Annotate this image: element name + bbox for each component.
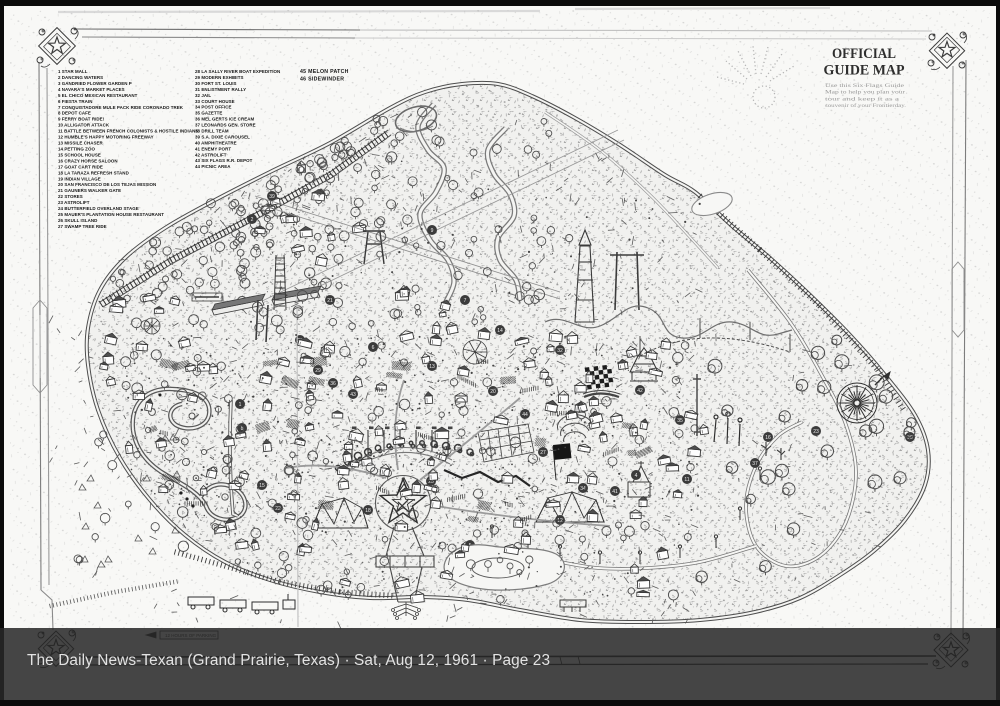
svg-text:42 ASTROLIFT: 42 ASTROLIFT	[195, 152, 227, 157]
svg-text:5 EL CHICO MEXICAN RESTAURANT: 5 EL CHICO MEXICAN RESTAURANT	[58, 93, 138, 98]
svg-text:24 BUTTERFIELD OVERLAND STAGE: 24 BUTTERFIELD OVERLAND STAGE	[58, 206, 139, 211]
svg-text:43: 43	[350, 392, 356, 398]
svg-text:33 COURT HOUSE: 33 COURT HOUSE	[195, 99, 235, 104]
svg-text:16 CRAZY HORSE SALOON: 16 CRAZY HORSE SALOON	[58, 158, 118, 163]
svg-text:36: 36	[330, 381, 336, 387]
svg-text:25 MAUER'S PLANTATION HOUSE RE: 25 MAUER'S PLANTATION HOUSE RESTAURANT	[58, 212, 164, 217]
svg-text:12 HUMBLE'S HAPPY MOTORING FRE: 12 HUMBLE'S HAPPY MOTORING FREEWAY	[58, 135, 154, 140]
svg-text:14 PETTING ZOO: 14 PETTING ZOO	[58, 147, 95, 152]
svg-text:4 NAVARA'S MARKET PLACES: 4 NAVARA'S MARKET PLACES	[58, 87, 125, 92]
svg-text:7 CONQUISTADORE MULE PACK RIDE: 7 CONQUISTADORE MULE PACK RIDE CORONADO …	[58, 105, 184, 110]
svg-text:29 MODERN EXHIBITS: 29 MODERN EXHIBITS	[195, 75, 244, 80]
svg-text:21: 21	[327, 298, 333, 304]
svg-text:37: 37	[752, 461, 758, 467]
svg-text:17 GOAT CART RIDE: 17 GOAT CART RIDE	[58, 164, 103, 169]
svg-text:37 LEONARDS GEN. STORE: 37 LEONARDS GEN. STORE	[195, 123, 256, 128]
svg-text:3 GANDRIED FLOWER GARDEN P: 3 GANDRIED FLOWER GARDEN P	[58, 81, 132, 86]
svg-text:OFFICIAL: OFFICIAL	[832, 46, 896, 62]
svg-text:28 LA SALLY RIVER BOAT EXPEDIT: 28 LA SALLY RIVER BOAT EXPEDITION	[195, 69, 280, 74]
svg-text:2: 2	[251, 217, 254, 223]
svg-text:27: 27	[540, 450, 546, 456]
svg-text:18 LA TARAZA REFRESH STAND: 18 LA TARAZA REFRESH STAND	[58, 170, 130, 175]
svg-text:7: 7	[464, 298, 467, 304]
svg-text:40 AMPHITHEATRE: 40 AMPHITHEATRE	[195, 140, 237, 145]
svg-text:11 BATTLE BETWEEN FRENCH COLON: 11 BATTLE BETWEEN FRENCH COLONISTS & HOS…	[58, 129, 198, 134]
svg-text:36 MEL GERTS ICE CREAM: 36 MEL GERTS ICE CREAM	[195, 117, 254, 122]
svg-text:38 DRILL TEAM: 38 DRILL TEAM	[195, 129, 229, 134]
svg-text:4: 4	[635, 473, 638, 479]
svg-text:15 SCHOOL HOUSE: 15 SCHOOL HOUSE	[58, 152, 101, 157]
svg-text:30 FORT ST. LOUIS: 30 FORT ST. LOUIS	[195, 81, 237, 86]
svg-text:32: 32	[557, 348, 563, 354]
svg-text:20: 20	[490, 389, 496, 395]
svg-text:31 ENLISTMENT RALLY: 31 ENLISTMENT RALLY	[195, 87, 246, 92]
svg-text:14: 14	[497, 328, 503, 334]
svg-text:42: 42	[637, 388, 643, 394]
svg-text:18: 18	[365, 508, 371, 514]
svg-text:1: 1	[239, 402, 242, 408]
svg-text:9: 9	[431, 228, 434, 234]
svg-text:43 SIX FLAGS R.R. DEPOT: 43 SIX FLAGS R.R. DEPOT	[195, 158, 253, 163]
svg-text:Use this Six Flags Guide: Use this Six Flags Guide	[825, 83, 905, 89]
svg-text:41: 41	[612, 489, 618, 495]
svg-text:13 MISSILE CHASER: 13 MISSILE CHASER	[58, 141, 103, 146]
svg-text:Map to help you plan your: Map to help you plan your	[825, 90, 905, 96]
svg-text:tour and keep it as a: tour and keep it as a	[825, 96, 900, 102]
svg-text:39 S.A. DIXIE CAROUSEL: 39 S.A. DIXIE CAROUSEL	[195, 134, 250, 139]
svg-text:15: 15	[259, 483, 265, 489]
svg-text:29: 29	[315, 368, 321, 374]
svg-text:26 SKULL ISLAND: 26 SKULL ISLAND	[58, 218, 98, 223]
svg-text:32 JAIL: 32 JAIL	[195, 93, 211, 98]
svg-text:44: 44	[522, 412, 528, 418]
svg-text:21 GAUNERS WALKER GATE: 21 GAUNERS WALKER GATE	[58, 188, 121, 193]
svg-text:1 STAR MALL: 1 STAR MALL	[58, 69, 88, 74]
svg-text:20 SAN FRANCISCO DE LOS TEJAS: 20 SAN FRANCISCO DE LOS TEJAS MISSION	[58, 182, 156, 187]
svg-text:6: 6	[372, 345, 375, 351]
svg-text:11: 11	[684, 477, 689, 483]
svg-text:GUIDE MAP: GUIDE MAP	[824, 63, 905, 79]
svg-text:35 GAZETTE: 35 GAZETTE	[195, 111, 222, 116]
svg-text:22 STORES: 22 STORES	[58, 194, 83, 199]
svg-text:45 MELON PATCH: 45 MELON PATCH	[300, 69, 349, 75]
svg-text:22: 22	[275, 506, 281, 512]
svg-text:35: 35	[677, 418, 683, 424]
svg-text:19 INDIAN VILLAGE: 19 INDIAN VILLAGE	[58, 176, 101, 181]
svg-text:44 PICNIC AREA: 44 PICNIC AREA	[195, 164, 231, 169]
svg-text:10 ALLIGATOR ATTACK: 10 ALLIGATOR ATTACK	[58, 123, 110, 128]
svg-text:27 SWAMP TREE RIDE: 27 SWAMP TREE RIDE	[58, 224, 107, 229]
svg-text:16: 16	[765, 435, 771, 441]
svg-text:9 FERRY BOAT RIDE!: 9 FERRY BOAT RIDE!	[58, 117, 105, 122]
svg-text:2 DANCING WATERS: 2 DANCING WATERS	[58, 75, 103, 80]
svg-text:13: 13	[429, 364, 435, 370]
svg-text:23: 23	[813, 429, 819, 435]
svg-text:6 FIESTA TRAIN: 6 FIESTA TRAIN	[58, 99, 92, 104]
svg-text:39: 39	[269, 194, 275, 200]
svg-text:34 POST OFFICE: 34 POST OFFICE	[195, 105, 231, 110]
svg-text:41 ENEMY PORT: 41 ENEMY PORT	[195, 146, 231, 151]
svg-text:46 SIDEWINDER: 46 SIDEWINDER	[300, 76, 344, 82]
svg-text:8 DEPOT CAFE: 8 DEPOT CAFE	[58, 111, 91, 116]
svg-text:23 ASTROLIFT: 23 ASTROLIFT	[58, 200, 90, 205]
svg-text:souvenir of your Frontierday.: souvenir of your Frontierday.	[825, 102, 906, 109]
